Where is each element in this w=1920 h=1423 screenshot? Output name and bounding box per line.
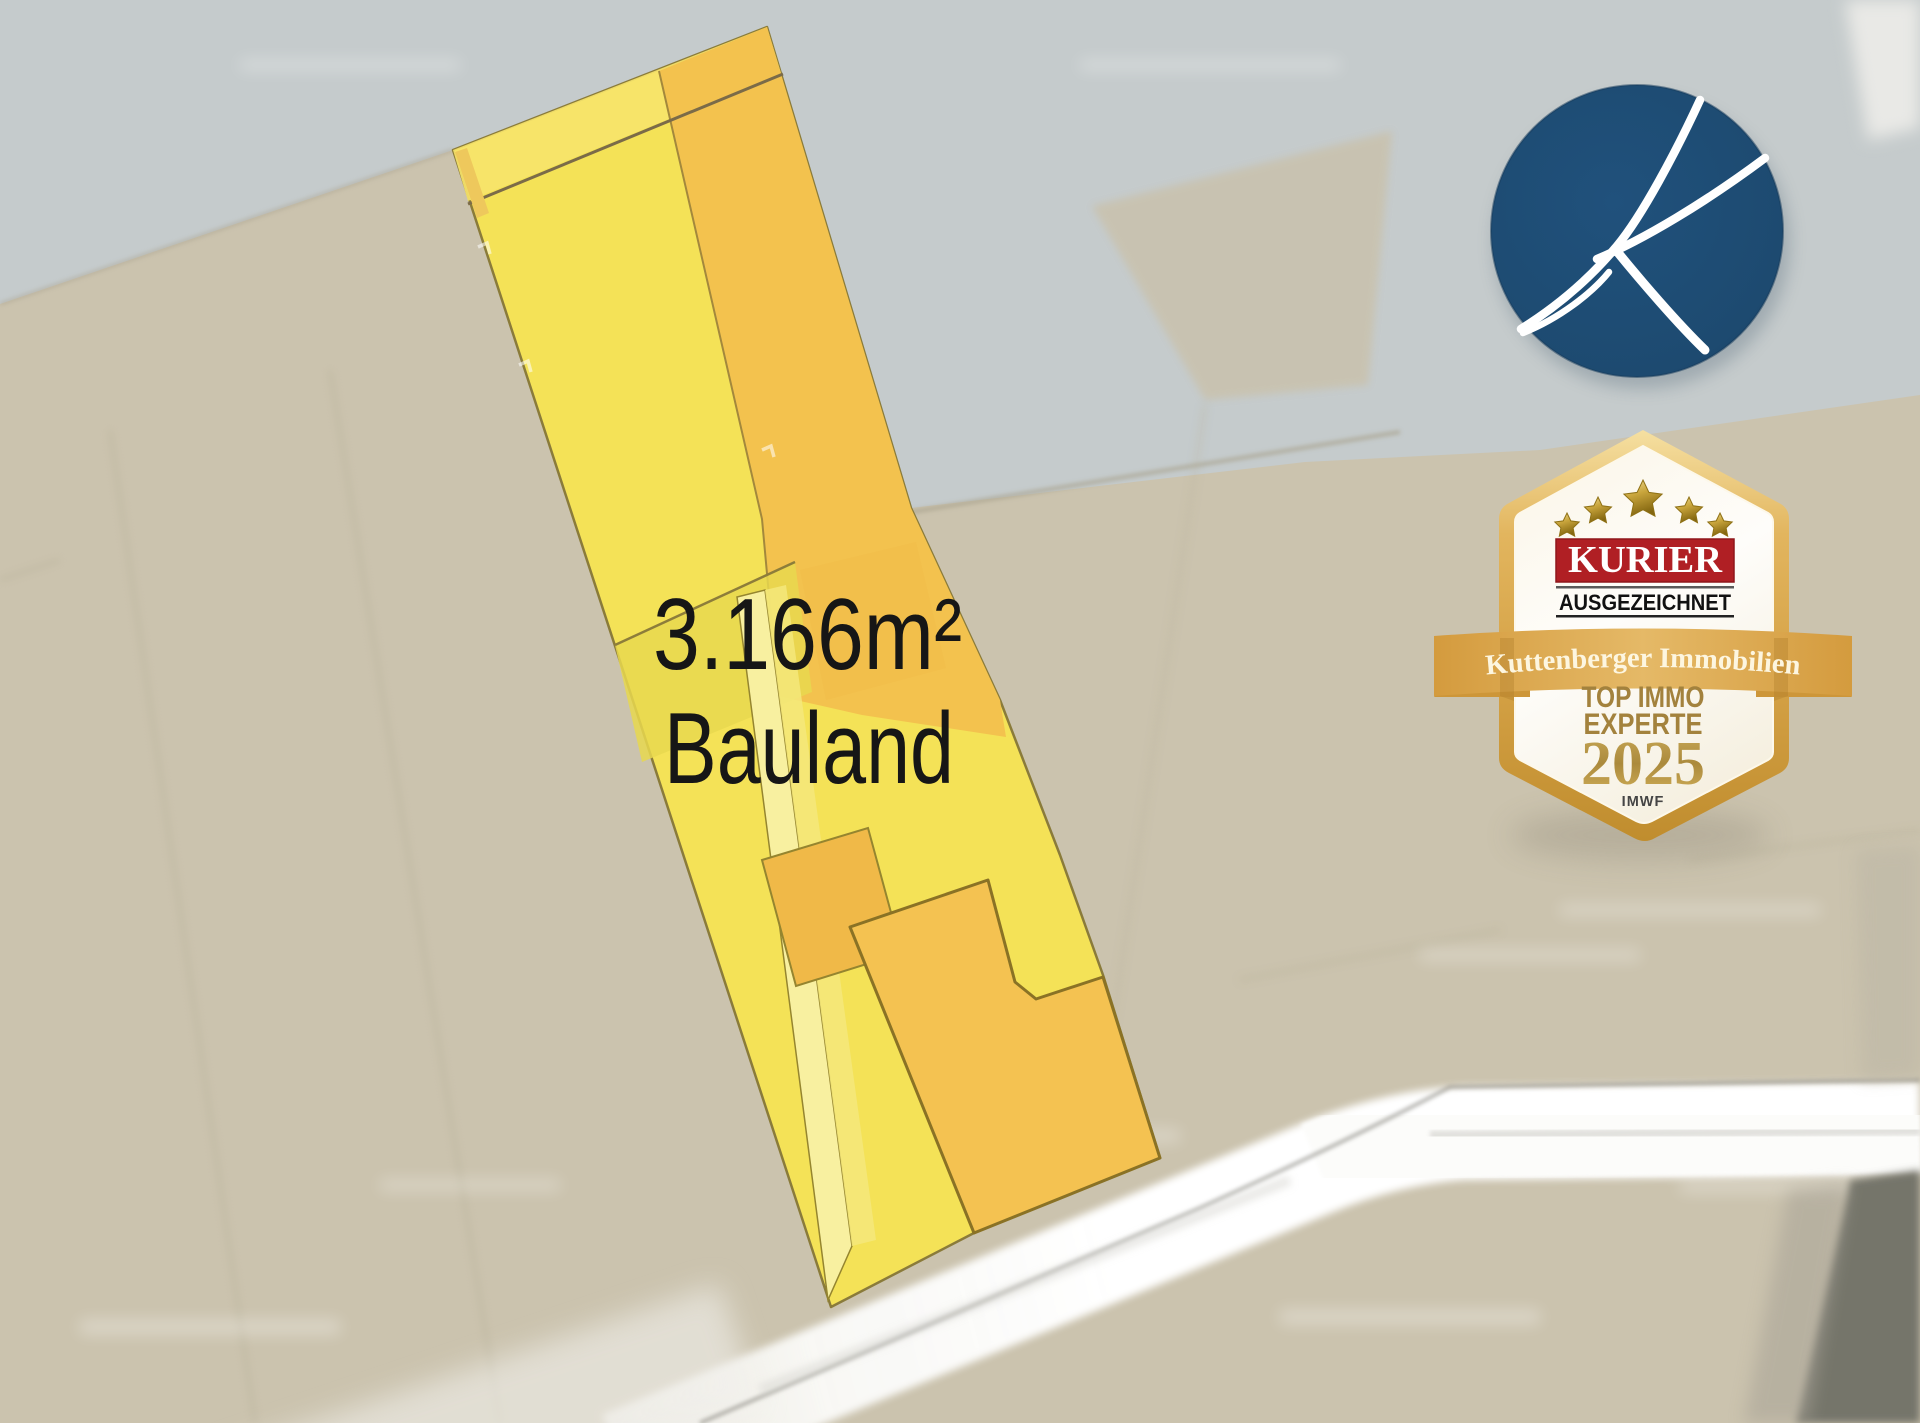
svg-text:AUSGEZEICHNET: AUSGEZEICHNET	[1559, 590, 1731, 615]
svg-text:3.166m²: 3.166m²	[653, 579, 962, 691]
svg-text:IMWF: IMWF	[1622, 794, 1665, 810]
svg-text:2025: 2025	[1581, 730, 1705, 798]
svg-text:Bauland: Bauland	[664, 693, 954, 805]
svg-text:KURIER: KURIER	[1568, 539, 1723, 581]
